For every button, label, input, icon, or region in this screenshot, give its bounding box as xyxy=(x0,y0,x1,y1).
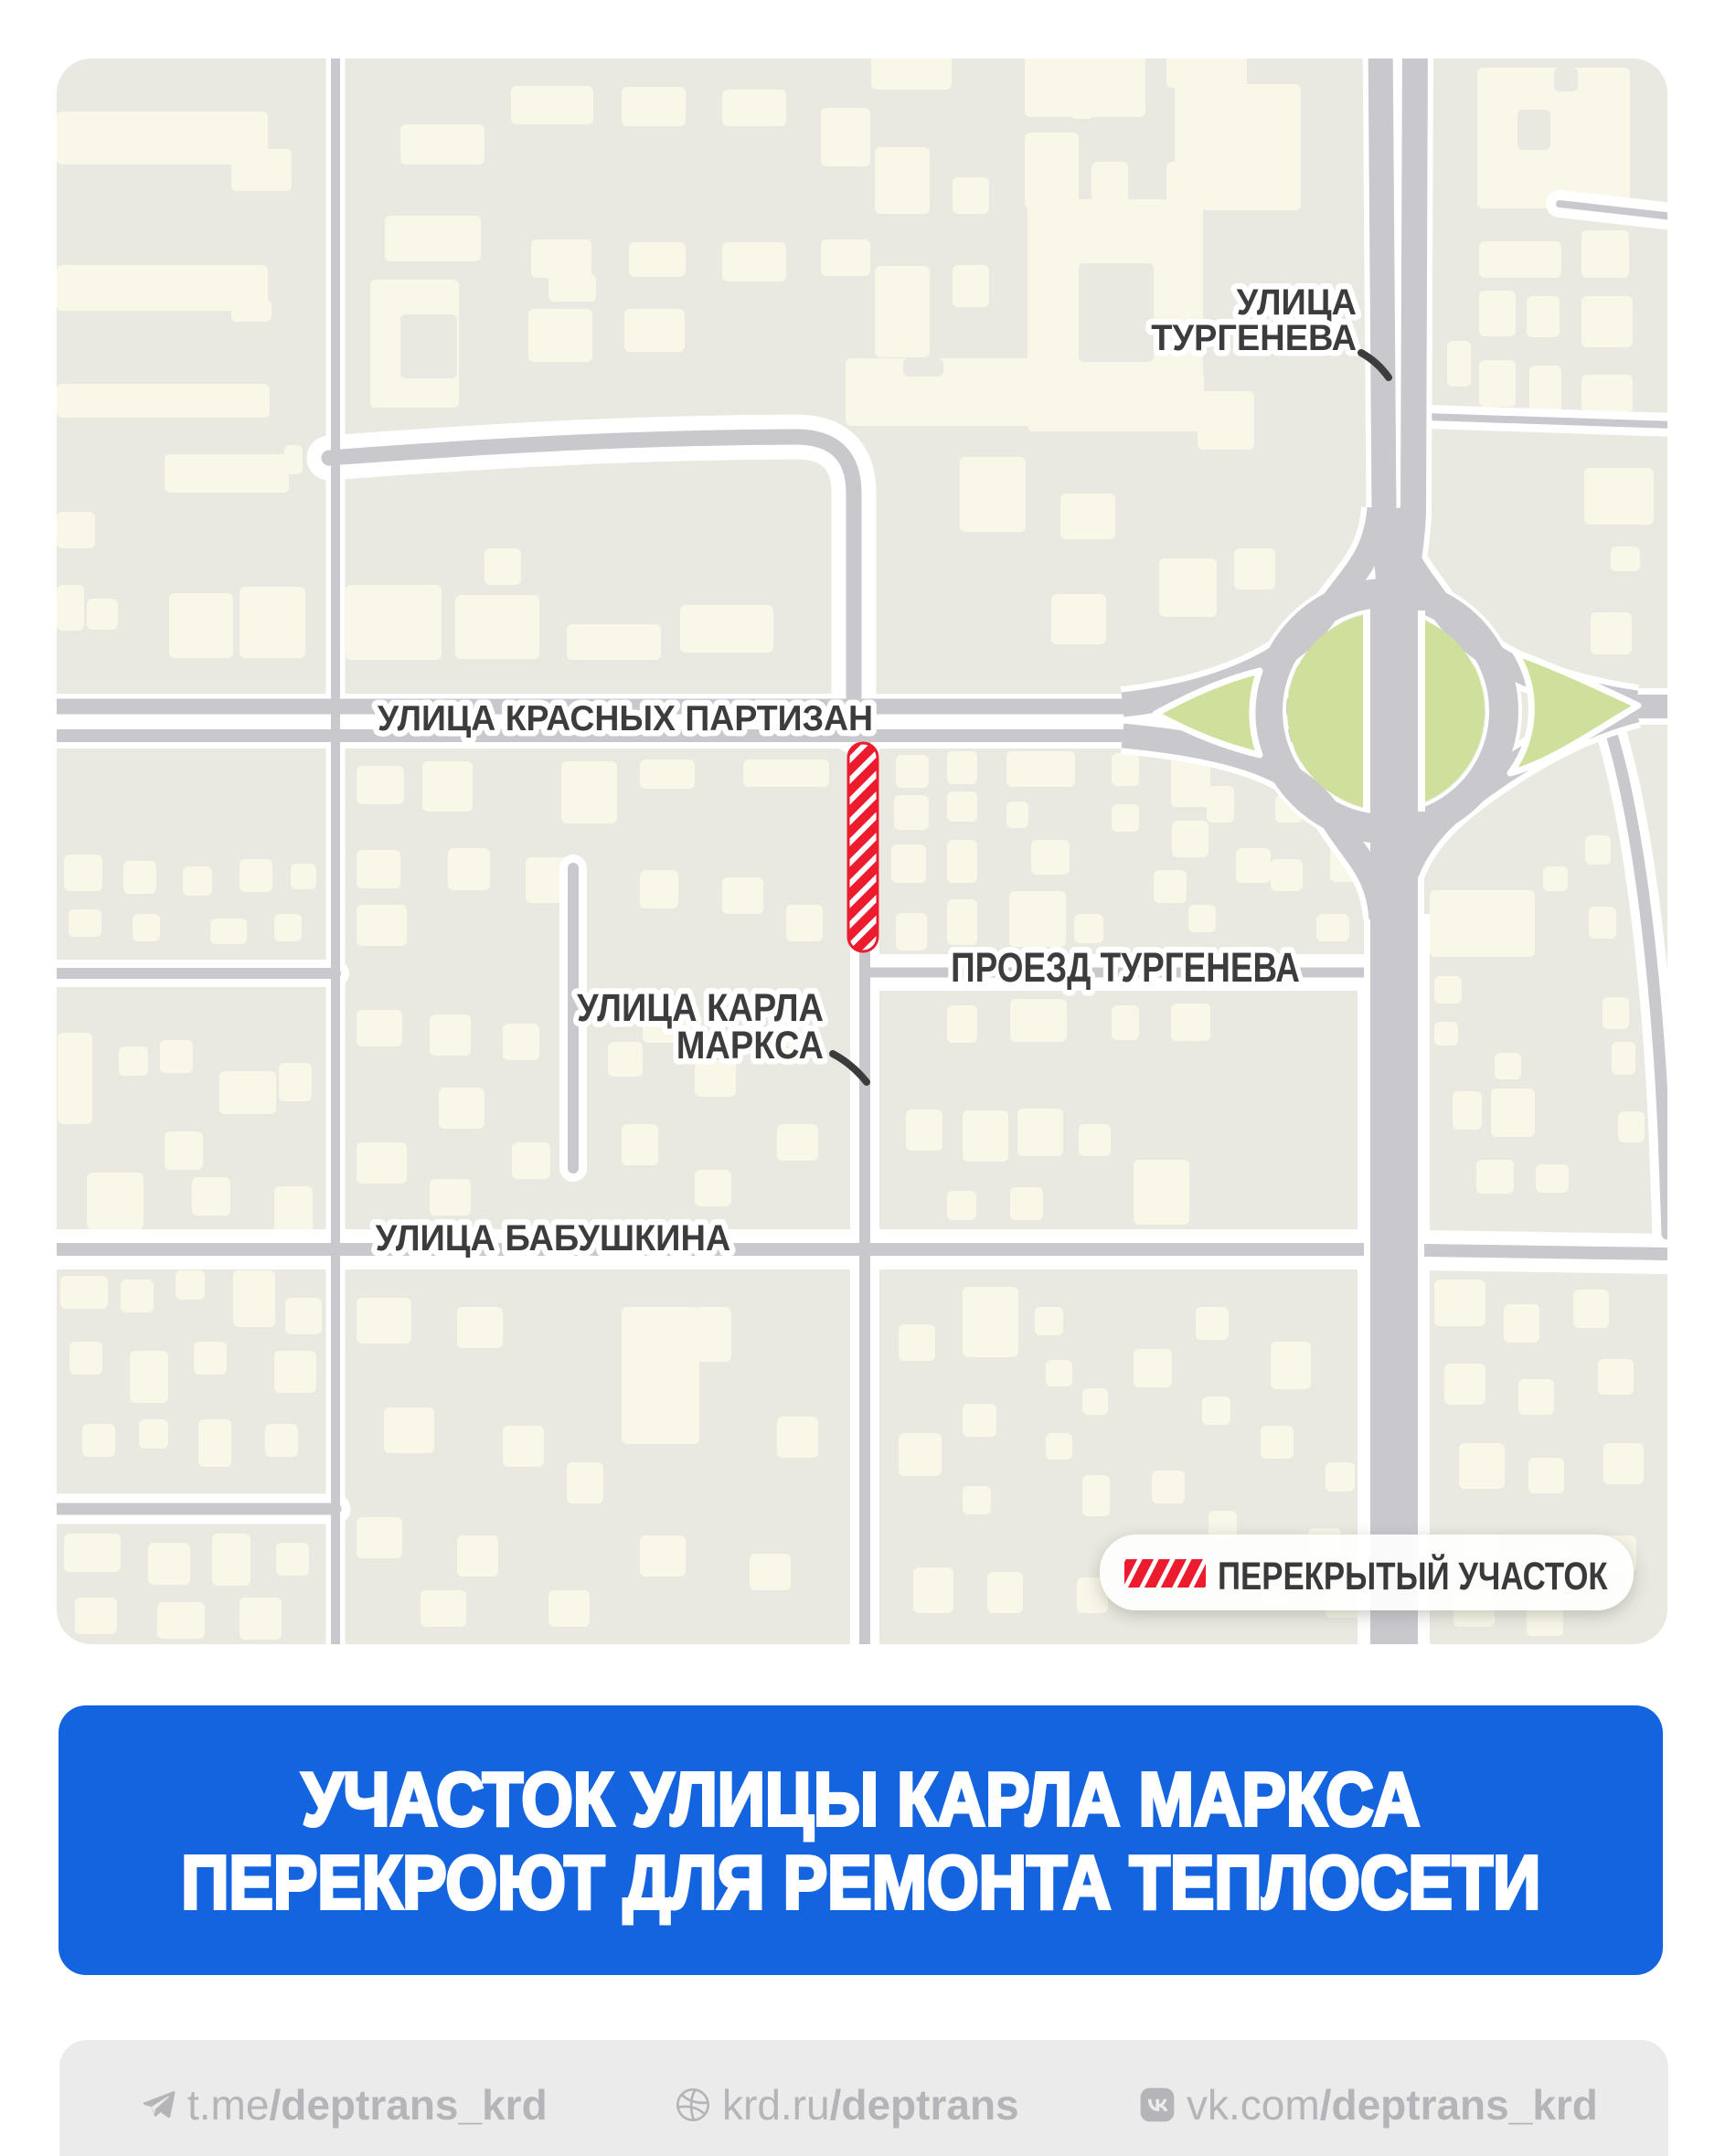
svg-text:ТУРГЕНЕВА: ТУРГЕНЕВА xyxy=(1151,318,1357,358)
svg-text:ПРОЕЗД ТУРГЕНЕВА: ПРОЕЗД ТУРГЕНЕВА xyxy=(951,945,1300,991)
svg-text:УЛИЦА БАБУШКИНА: УЛИЦА БАБУШКИНА xyxy=(376,1218,731,1259)
svg-text:УЛИЦА: УЛИЦА xyxy=(1237,282,1357,323)
svg-text:ПЕРЕКРЫТЫЙ УЧАСТОК: ПЕРЕКРЫТЫЙ УЧАСТОК xyxy=(1218,1553,1608,1598)
svg-text:МАРКСА: МАРКСА xyxy=(676,1023,824,1067)
svg-text:УЛИЦА КРАСНЫХ ПАРТИЗАН: УЛИЦА КРАСНЫХ ПАРТИЗАН xyxy=(378,698,873,738)
